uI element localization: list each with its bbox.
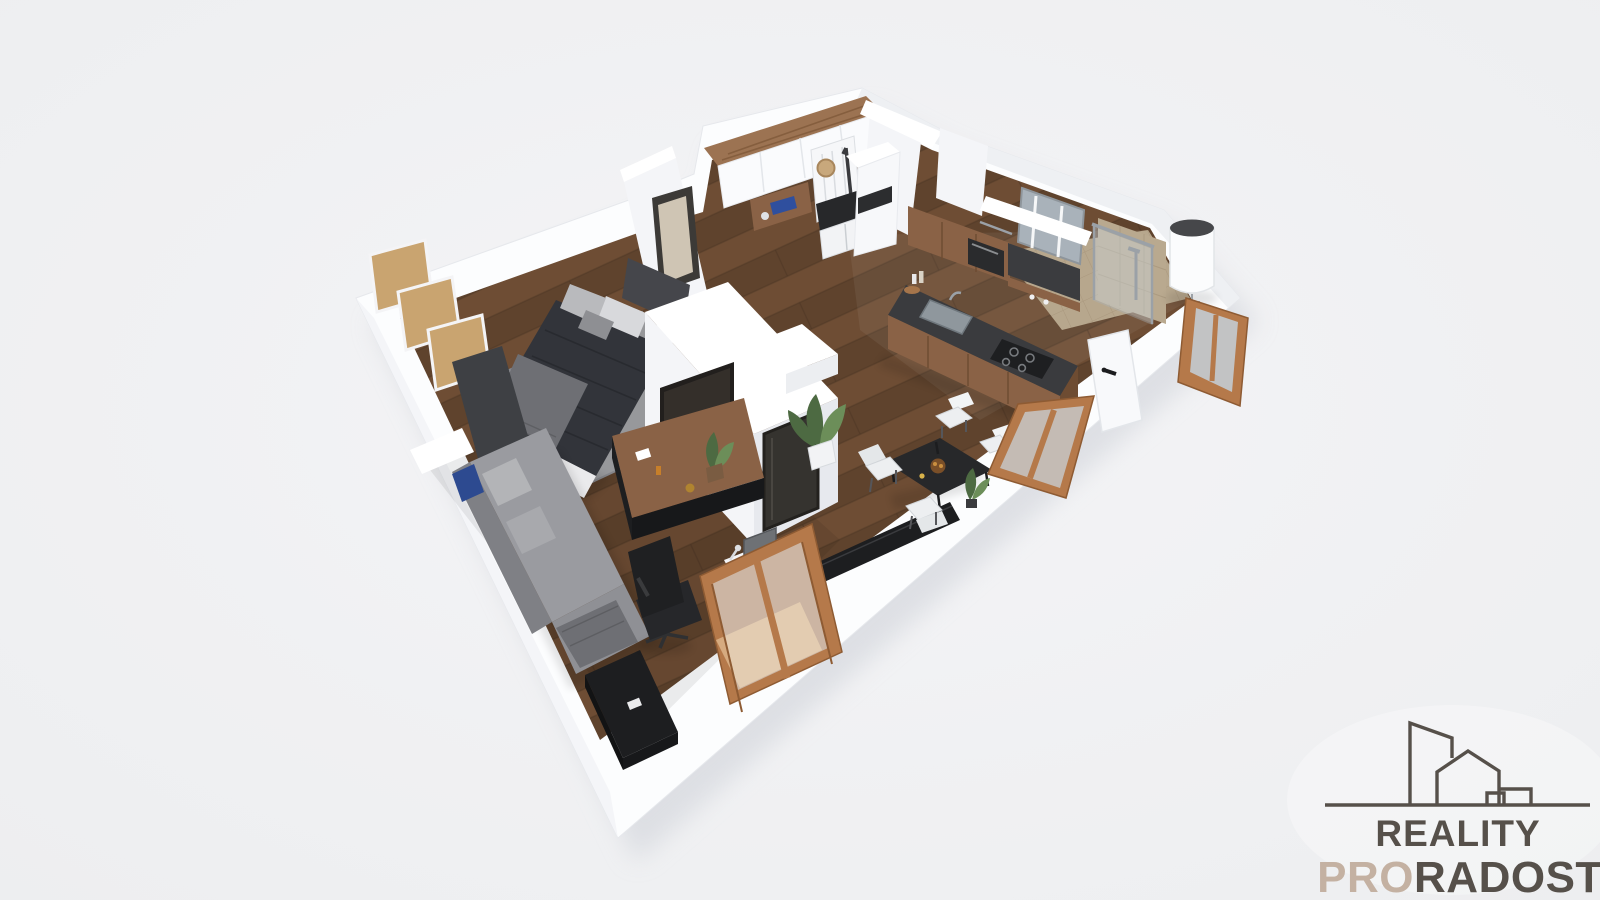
logo-line2: PRORADOST [1317,853,1600,900]
bottle-2 [919,271,924,283]
cutting-board [904,286,920,294]
door-handle-rose [1102,368,1107,373]
bottle-1 [912,274,917,284]
logo-line1: REALITY [1375,813,1540,854]
fruit [939,464,943,468]
amber-bottle [656,466,661,475]
water-heater [1166,220,1218,307]
logo-line2-rest: RADOST [1414,853,1600,900]
cup-2 [1043,299,1048,304]
heater-body [1170,228,1214,293]
gold-bowl [686,484,695,493]
heater-top [1170,220,1214,237]
fruit [933,462,937,466]
floor-plan-render: REALITY PRORADOST [0,0,1600,900]
plant-pot-dark [966,499,977,508]
straw-hat [818,160,835,177]
cup-1 [1029,294,1034,299]
fruit-bowl [931,459,946,474]
desk-lamp-head [735,545,741,551]
glasses [761,212,769,220]
logo: REALITY PRORADOST [1287,705,1600,900]
logo-line2-accent: PRO [1317,853,1414,900]
candle [919,473,924,478]
